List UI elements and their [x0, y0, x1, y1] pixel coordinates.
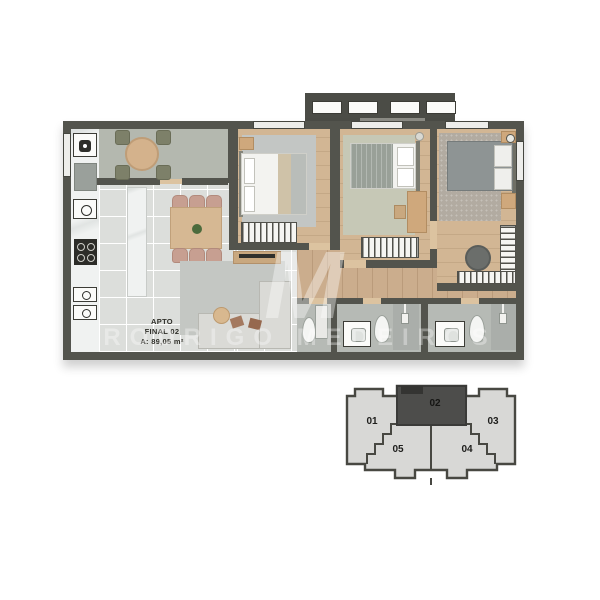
master-closet-rack — [500, 225, 516, 277]
ac-unit-icon — [312, 101, 342, 114]
keyplan: 01 02 03 04 05 — [345, 384, 517, 486]
balcony-wall — [182, 178, 228, 185]
watermark-monogram: M — [257, 238, 354, 334]
shower-head-icon — [401, 313, 409, 324]
cooktop-sink-icon — [73, 199, 97, 219]
master-nightstand — [501, 193, 516, 209]
bedroom2-window — [351, 121, 403, 129]
washer-icon — [73, 305, 97, 320]
bed1-throw — [278, 154, 291, 214]
master-closet-rack — [457, 271, 516, 284]
bed2-pillow — [397, 168, 414, 187]
balcony-chair — [156, 130, 171, 145]
sink-icon — [73, 133, 97, 157]
bed2 — [350, 143, 416, 189]
technical-platform — [305, 93, 455, 122]
bedroom2-desk — [407, 191, 427, 233]
bath2-door — [461, 298, 479, 304]
ac-unit-icon — [426, 101, 456, 114]
lamp-icon — [506, 134, 515, 143]
ac-unit-icon — [348, 101, 378, 114]
bed1-blanket — [291, 154, 306, 214]
balcony-window — [63, 133, 71, 177]
bedroom1-window — [253, 121, 305, 129]
master-window — [445, 121, 489, 129]
keyplan-unit-02: 02 — [421, 398, 449, 409]
floorplan-page: APTO FINAL 02 A: 89,05 m² M RODRIGO MEDE… — [0, 0, 600, 600]
keyplan-unit02-notch — [401, 386, 423, 394]
master-door — [430, 221, 437, 249]
bed2-blanket — [351, 144, 393, 188]
keyplan-unit-03: 03 — [479, 416, 507, 427]
kitchen-peninsula — [127, 187, 147, 297]
balcony-chair — [115, 130, 130, 145]
keyplan-unit-01: 01 — [358, 416, 386, 427]
balcony-chair — [156, 165, 171, 180]
side-table — [213, 307, 230, 324]
watermark-text: RODRIGO MEDEIROS — [0, 324, 600, 352]
bedroom2-lamp — [415, 132, 424, 141]
bed2-headboard — [416, 141, 420, 191]
keyplan-unit-05: 05 — [384, 444, 412, 455]
bed1-pillow — [244, 158, 255, 184]
washer-icon — [73, 287, 97, 302]
master-nightstand — [501, 131, 516, 143]
master-bed — [447, 141, 513, 191]
master-bottom-wall — [437, 283, 516, 291]
bed2-pillow — [397, 147, 414, 166]
bed1 — [241, 153, 307, 215]
stove-icon — [74, 239, 97, 265]
plant-icon — [192, 224, 202, 234]
bedroom1-left-wall — [229, 129, 238, 250]
balcony-chair — [115, 165, 130, 180]
bed1-nightstand — [239, 137, 254, 150]
bedroom2-dresser — [361, 237, 419, 258]
master-pillow — [494, 145, 512, 167]
bedroom2-stool — [394, 205, 406, 219]
shower-head-icon — [499, 313, 507, 324]
dining-table — [170, 207, 222, 249]
bed1-pillow — [244, 186, 255, 212]
balcony-table — [125, 137, 159, 171]
bath1-door — [363, 298, 381, 304]
master-side-window — [516, 141, 524, 181]
keyplan-unit-04: 04 — [453, 444, 481, 455]
master-pillow — [494, 168, 512, 190]
fridge-icon — [74, 163, 97, 191]
ac-unit-icon — [390, 101, 420, 114]
master-pouf — [465, 245, 491, 271]
